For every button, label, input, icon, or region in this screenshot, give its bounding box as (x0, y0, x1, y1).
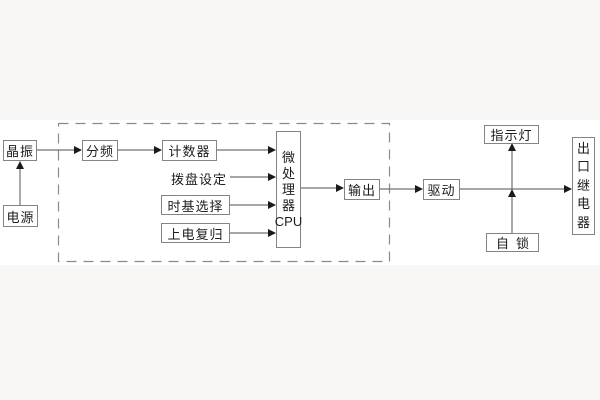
cpu-caption: CPU (275, 214, 302, 230)
arrowhead-right-divider (74, 146, 82, 154)
block-diagram: 晶振 电源 分频 计数器 拨盘设定 时基选择 上电复归 微 处 理 器 CPU … (0, 0, 600, 400)
relay-char-5: 器 (577, 214, 590, 233)
node-microprocessor-cpu: 微 处 理 器 CPU (276, 131, 301, 248)
cpu-char-4: 器 (282, 198, 295, 214)
cpu-char-1: 微 (282, 150, 295, 166)
node-self-lock: 自锁 (486, 233, 539, 252)
relay-char-3: 继 (577, 177, 590, 196)
node-power-supply: 电源 (3, 205, 38, 227)
arrowhead-right-output (336, 184, 344, 192)
label-dial-setting: 拨盘设定 (167, 170, 231, 186)
arrowhead-right-drive (415, 185, 423, 193)
arrowhead-right-cpu-1 (268, 146, 276, 154)
arrowhead-up-indicator (508, 143, 516, 151)
cpu-char-3: 理 (282, 182, 295, 198)
relay-char-2: 口 (577, 158, 590, 177)
node-output: 输出 (344, 179, 380, 200)
node-indicator-light: 指示灯 (484, 125, 539, 144)
arrowhead-up-junction (508, 189, 516, 197)
arrowhead-right-cpu-2 (268, 173, 276, 181)
arrowhead-right-counter (154, 146, 162, 154)
node-crystal-oscillator: 晶振 (3, 140, 37, 161)
node-frequency-divider: 分频 (82, 140, 118, 161)
node-counter: 计数器 (162, 140, 217, 161)
relay-char-1: 出 (577, 140, 590, 159)
relay-char-4: 电 (577, 195, 590, 214)
arrowhead-right-cpu-3 (268, 201, 276, 209)
arrowhead-right-relay (564, 185, 572, 193)
arrowhead-up-crystal (16, 161, 24, 169)
node-outlet-relay: 出 口 继 电 器 (572, 137, 595, 235)
cpu-char-2: 处 (282, 166, 295, 182)
node-drive: 驱动 (423, 179, 460, 200)
node-timebase-select: 时基选择 (161, 195, 230, 215)
arrowhead-right-cpu-4 (268, 229, 276, 237)
node-power-on-reset: 上电复归 (161, 223, 230, 243)
